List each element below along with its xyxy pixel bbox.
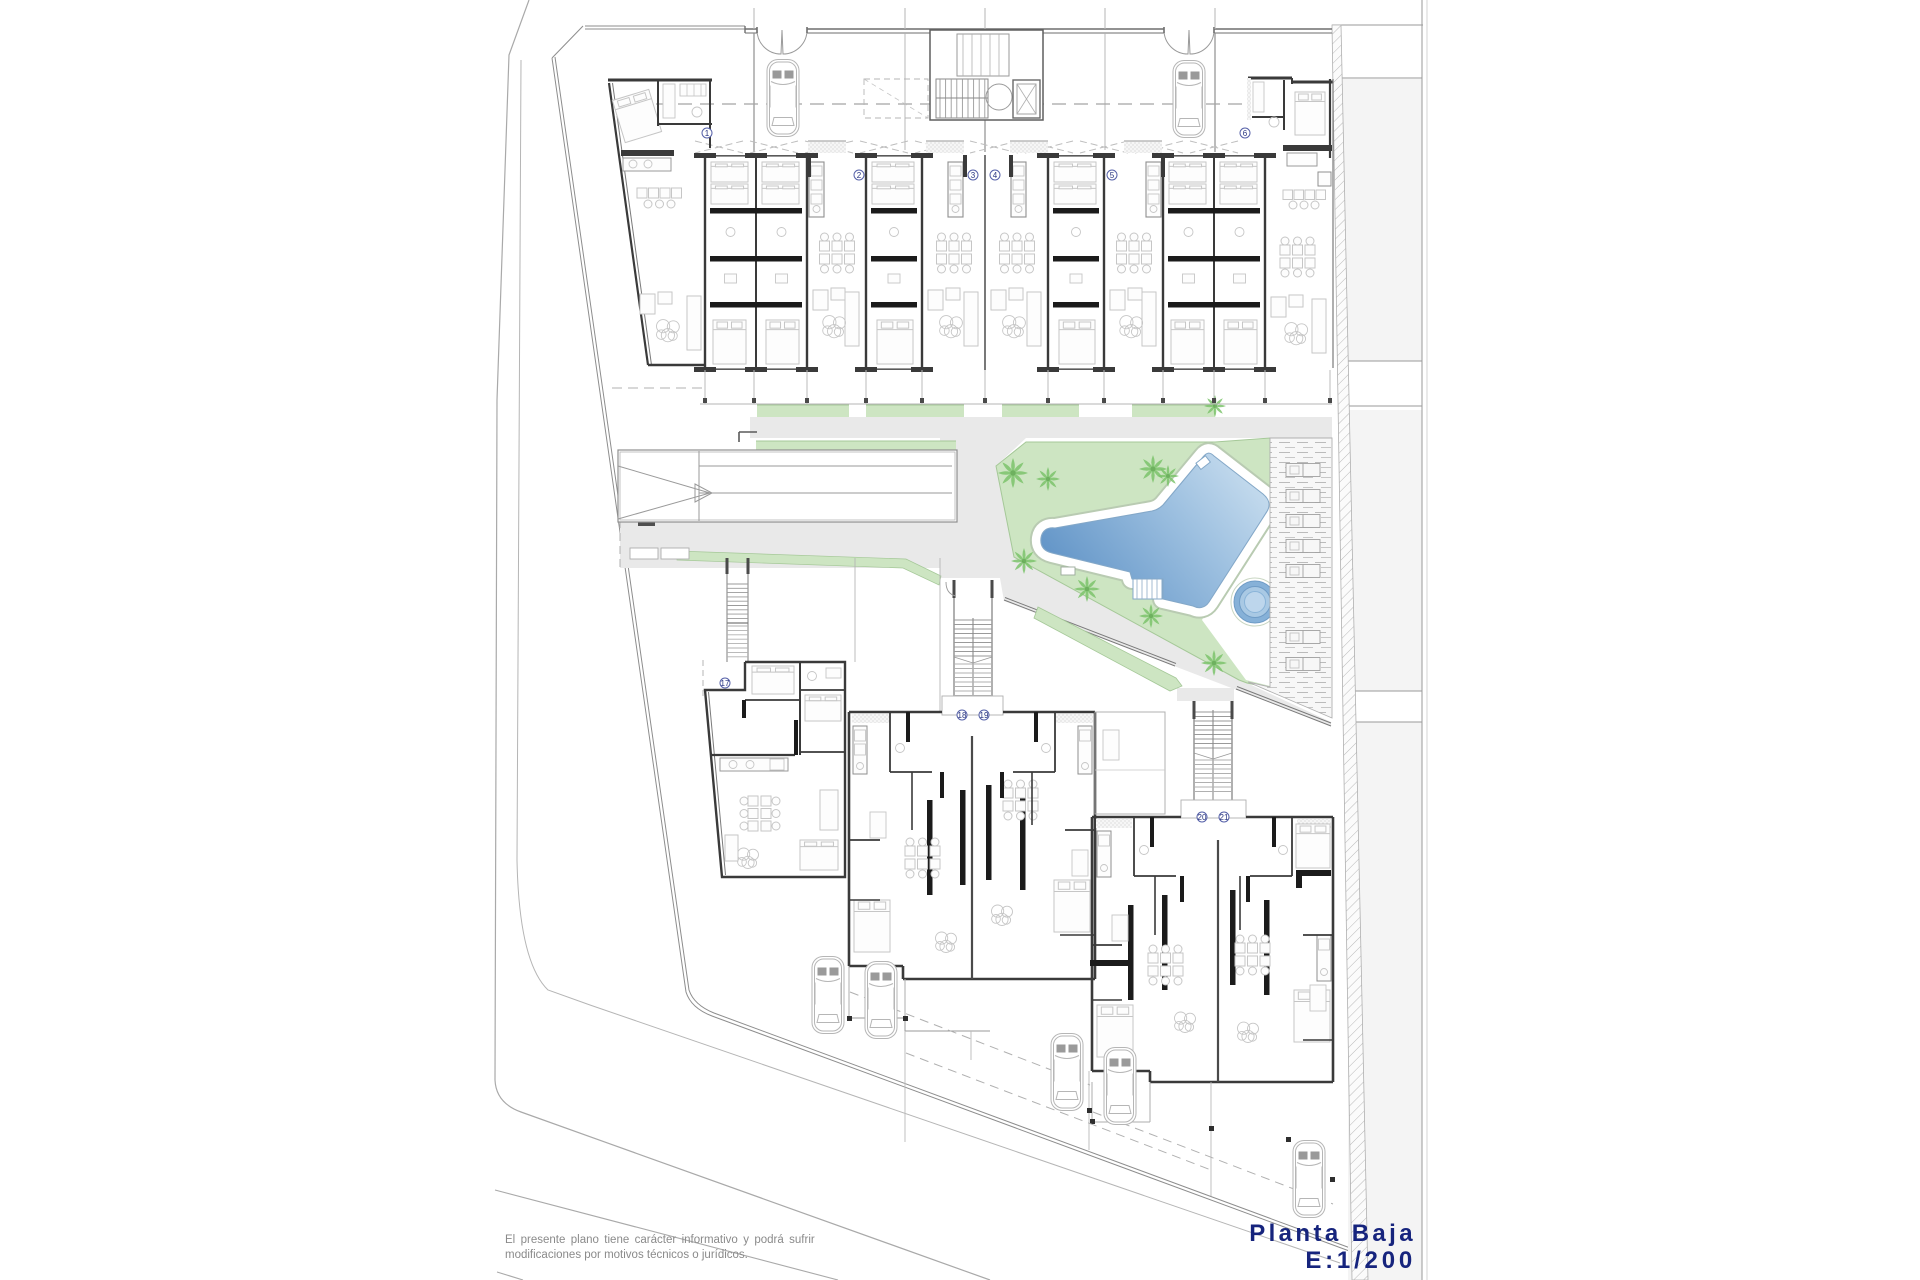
svg-text:El presente plano tiene ca: El presente plano tiene carácter informa… bbox=[505, 1234, 815, 1246]
svg-text:17: 17 bbox=[721, 679, 730, 688]
svg-text:Planta Baja: Planta Baja bbox=[1249, 1220, 1416, 1247]
svg-text:2: 2 bbox=[857, 171, 862, 180]
svg-text:modificaciones por motivos téc: modificaciones por motivos técnicos o ju… bbox=[505, 1249, 748, 1261]
svg-text:21: 21 bbox=[1220, 813, 1229, 822]
svg-text:5: 5 bbox=[1110, 171, 1115, 180]
svg-text:19: 19 bbox=[980, 711, 989, 720]
svg-text:1: 1 bbox=[705, 129, 710, 138]
svg-text:4: 4 bbox=[993, 171, 998, 180]
svg-text:E:1/200: E:1/200 bbox=[1305, 1247, 1416, 1274]
svg-text:6: 6 bbox=[1243, 129, 1248, 138]
svg-text:18: 18 bbox=[958, 711, 967, 720]
svg-text:20: 20 bbox=[1198, 813, 1207, 822]
svg-text:3: 3 bbox=[971, 171, 976, 180]
